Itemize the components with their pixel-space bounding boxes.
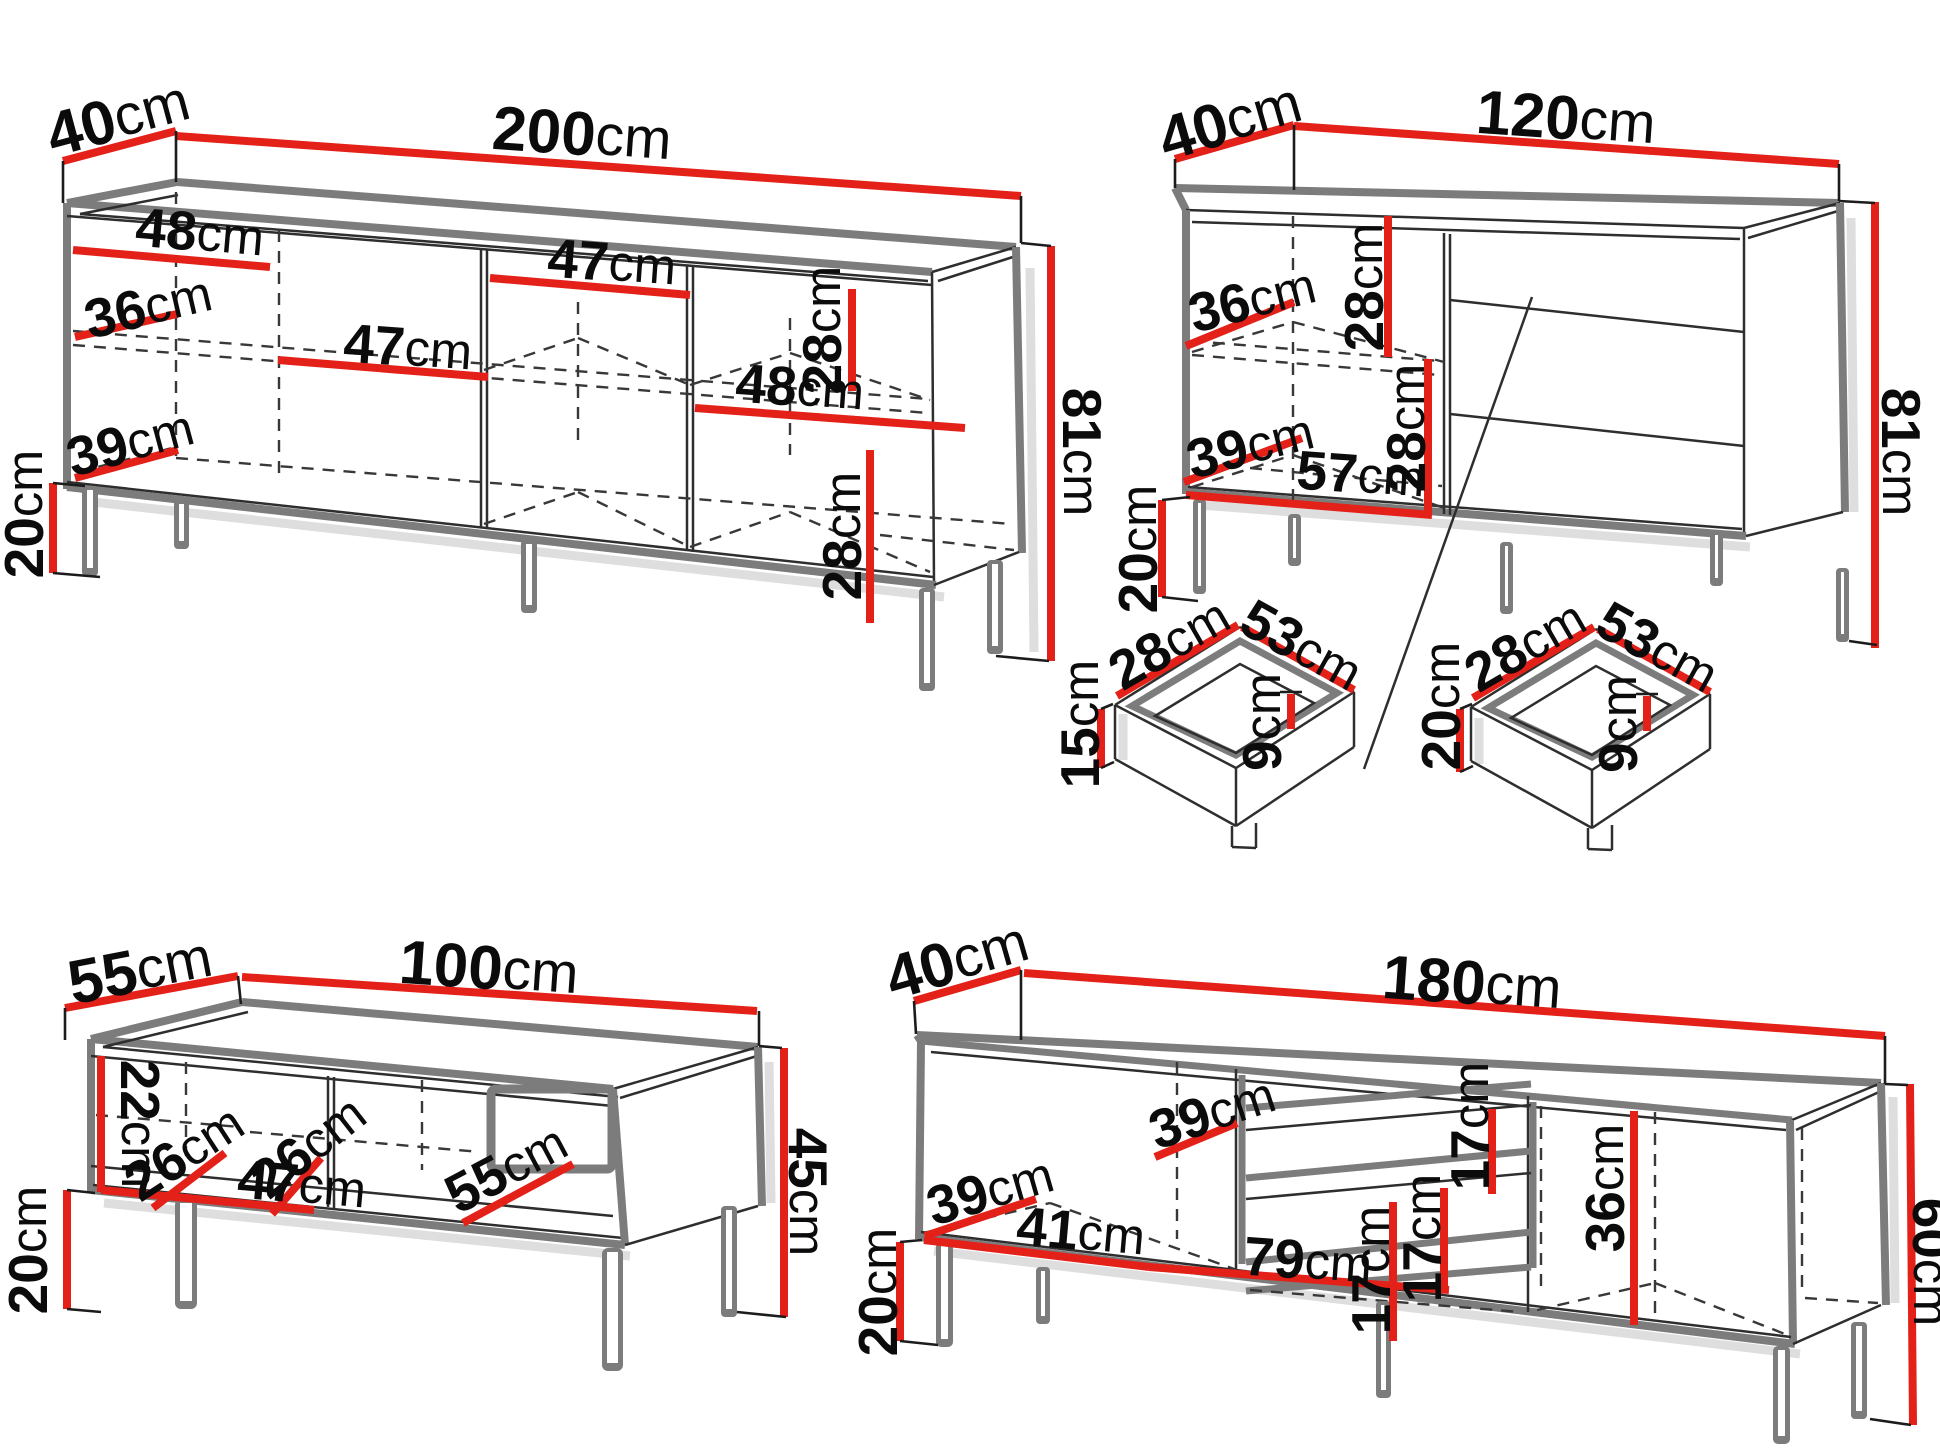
svg-text:36cm: 36cm xyxy=(1574,1124,1636,1253)
svg-text:17cm: 17cm xyxy=(1340,1206,1402,1335)
svg-text:120cm: 120cm xyxy=(1474,77,1658,158)
svg-text:200cm: 200cm xyxy=(490,93,674,174)
svg-text:47cm: 47cm xyxy=(546,227,679,298)
svg-text:28cm: 28cm xyxy=(1333,223,1395,352)
svg-text:20cm: 20cm xyxy=(847,1228,909,1357)
svg-text:60cm: 60cm xyxy=(1901,1198,1940,1327)
svg-text:57cm: 57cm xyxy=(1295,439,1428,510)
svg-text:180cm: 180cm xyxy=(1380,942,1564,1023)
svg-text:9cm: 9cm xyxy=(1231,673,1293,771)
svg-text:17cm: 17cm xyxy=(1439,1062,1501,1191)
svg-text:47cm: 47cm xyxy=(342,312,475,383)
svg-text:20cm: 20cm xyxy=(0,1186,59,1315)
svg-text:45cm: 45cm xyxy=(777,1128,839,1257)
svg-text:81cm: 81cm xyxy=(1870,388,1932,517)
svg-text:28cm: 28cm xyxy=(811,472,873,601)
svg-text:81cm: 81cm xyxy=(1051,388,1113,517)
svg-text:28cm: 28cm xyxy=(791,266,853,395)
svg-text:20cm: 20cm xyxy=(0,450,55,579)
svg-text:100cm: 100cm xyxy=(397,927,581,1008)
svg-text:20cm: 20cm xyxy=(1107,485,1169,614)
svg-text:20cm: 20cm xyxy=(1410,642,1472,771)
svg-text:15cm: 15cm xyxy=(1049,660,1111,789)
svg-text:9cm: 9cm xyxy=(1587,675,1649,773)
